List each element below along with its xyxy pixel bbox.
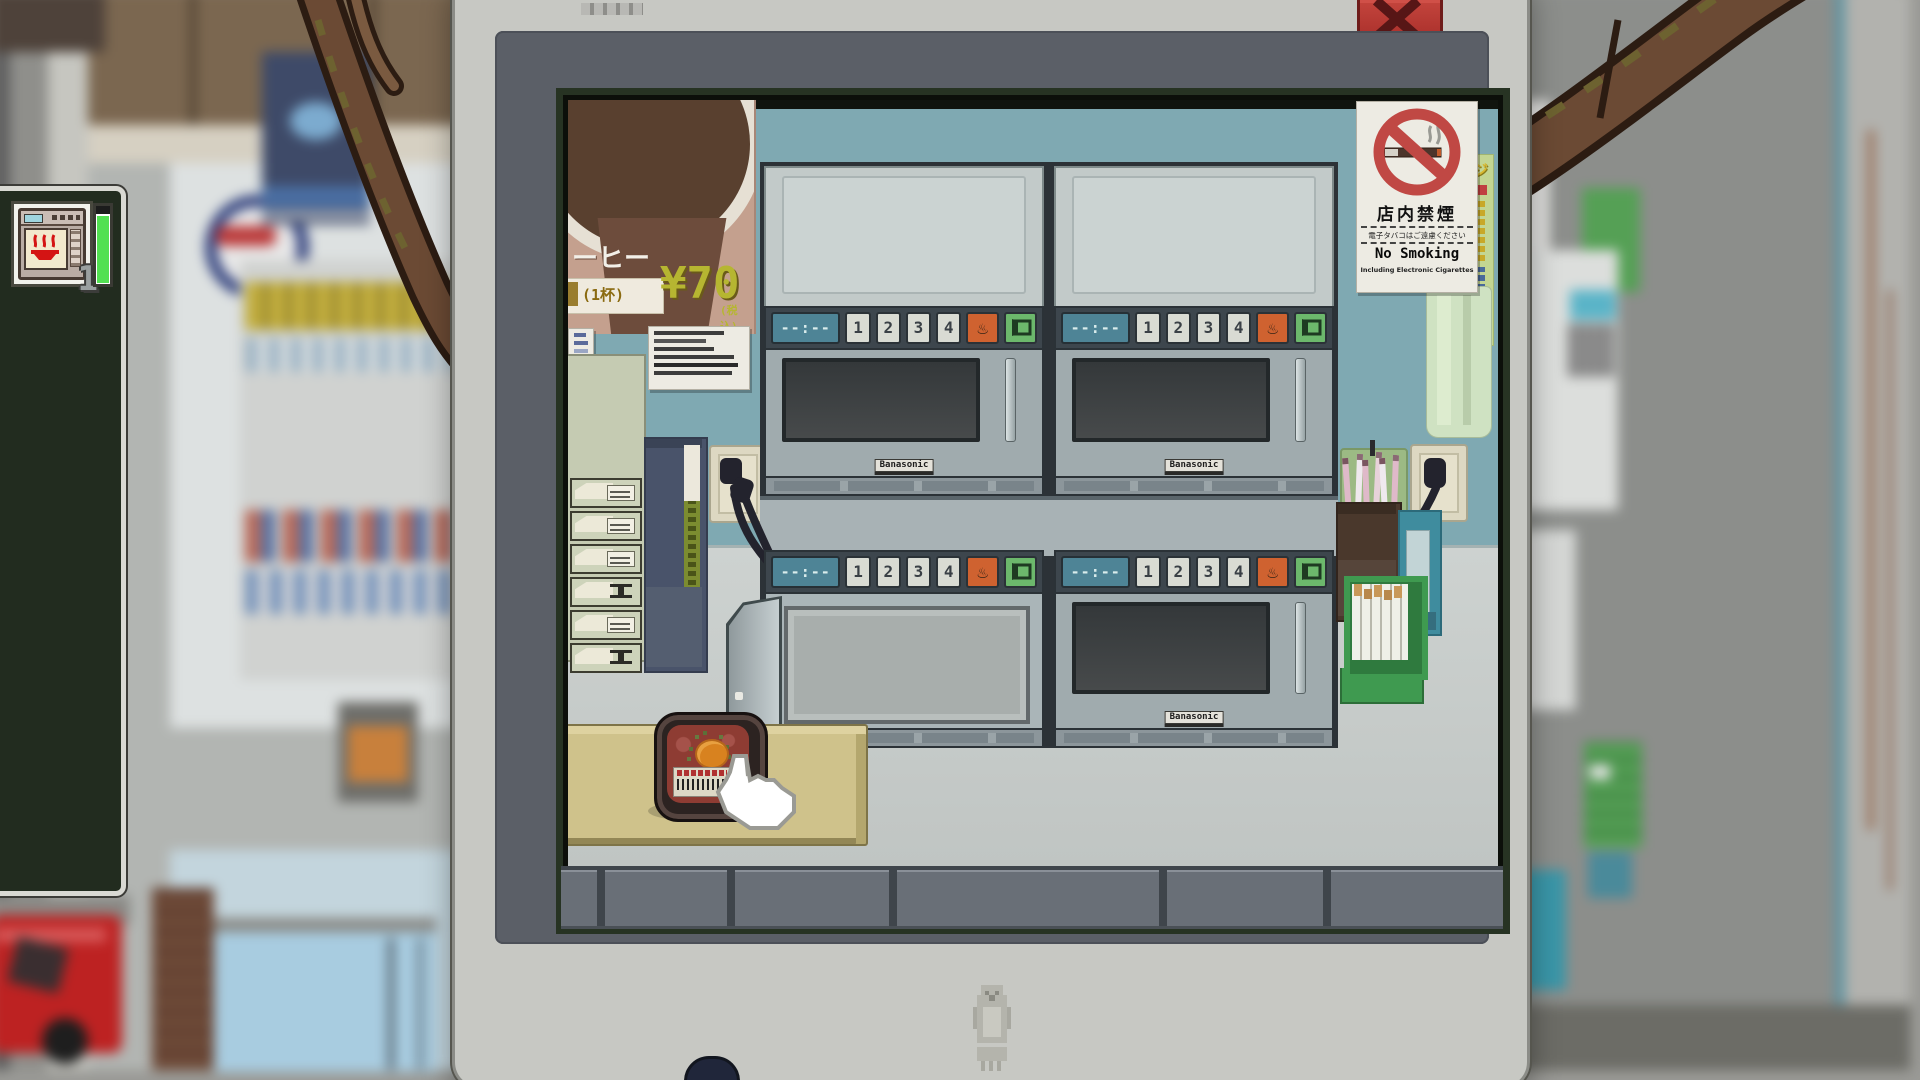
heat-button[interactable]: ♨: [1256, 312, 1289, 344]
timer-display: --:--: [771, 556, 840, 588]
heat-button[interactable]: ♨: [1256, 556, 1289, 588]
durability-bar: [93, 203, 113, 287]
microwave-top-right: --:-- 1 2 3 4 ♨ Banasonic: [1054, 166, 1334, 496]
microwave-door[interactable]: Banasonic: [1054, 350, 1334, 478]
door-open-button[interactable]: [1004, 312, 1037, 344]
door-window: [782, 358, 980, 442]
preset-button-1[interactable]: 1: [845, 312, 870, 344]
preset-button-2[interactable]: 2: [1166, 556, 1191, 588]
minigame-screen: ーヒー (1杯) ¥70 (税込): [563, 95, 1503, 927]
preset-button-3[interactable]: 3: [1196, 556, 1221, 588]
inventory-panel: 1: [0, 186, 126, 896]
plastic-bag: [1426, 286, 1492, 438]
microwave-bottom-right: --:-- 1 2 3 4 ♨ Banasonic: [1054, 550, 1334, 748]
preset-button-3[interactable]: 3: [906, 556, 931, 588]
microwave-control-panel: --:-- 1 2 3 4 ♨: [1054, 306, 1334, 350]
chopstick-box: [1344, 576, 1428, 680]
preset-button-4[interactable]: 4: [936, 556, 961, 588]
no-smoking-en-title: No Smoking: [1357, 246, 1477, 262]
door-open-button[interactable]: [1294, 556, 1327, 588]
microwave-icon: [18, 208, 86, 280]
preset-button-4[interactable]: 4: [1226, 556, 1251, 588]
heat-button[interactable]: ♨: [966, 556, 999, 588]
microwave-door[interactable]: Banasonic: [764, 350, 1044, 478]
microwave-slot-card[interactable]: 1: [11, 201, 93, 287]
preset-button-2[interactable]: 2: [876, 312, 901, 344]
preset-button-1[interactable]: 1: [845, 556, 870, 588]
door-handle: [1005, 358, 1016, 442]
timer-display: --:--: [771, 312, 840, 344]
door-handle: [1295, 358, 1306, 442]
screen-bezel: ーヒー (1杯) ¥70 (税込): [495, 31, 1489, 944]
microwave-bottom-left-open: --:-- 1 2 3 4 ♨: [764, 550, 1044, 748]
timer-display: --:--: [1061, 312, 1130, 344]
microwave-control-panel: --:-- 1 2 3 4 ♨: [764, 306, 1044, 350]
no-smoking-jp-note: 電子タバコはご遠慮ください: [1357, 230, 1477, 241]
preset-button-3[interactable]: 3: [906, 312, 931, 344]
no-smoking-sign: 店内禁煙 電子タバコはご遠慮ください No Smoking Including …: [1356, 101, 1478, 293]
game-screen: 1: [0, 0, 1920, 1080]
door-open-button[interactable]: [1294, 312, 1327, 344]
minigame-device: ーヒー (1杯) ¥70 (税込): [452, 0, 1530, 1080]
no-smoking-jp-title: 店内禁煙: [1357, 200, 1477, 225]
preset-button-3[interactable]: 3: [1196, 312, 1221, 344]
brand-label: Banasonic: [1165, 711, 1224, 724]
microwave-door[interactable]: Banasonic: [1054, 594, 1334, 730]
preset-button-1[interactable]: 1: [1135, 556, 1160, 588]
preset-button-4[interactable]: 4: [1226, 312, 1251, 344]
heat-button[interactable]: ♨: [966, 312, 999, 344]
brand-label: Banasonic: [1165, 459, 1224, 472]
microwave-top-left: --:-- 1 2 3 4 ♨ Banasonic: [764, 166, 1044, 496]
door-window: [1072, 358, 1270, 442]
microwave-control-panel: --:-- 1 2 3 4 ♨: [1054, 550, 1334, 594]
branch-right-icon: [1480, 0, 1920, 240]
door-open-button[interactable]: [1004, 556, 1037, 588]
microwave-open-cavity[interactable]: [764, 594, 1044, 730]
brand-label: Banasonic: [875, 459, 934, 472]
microwave-interior[interactable]: [784, 606, 1030, 724]
preset-button-2[interactable]: 2: [876, 556, 901, 588]
door-window: [1072, 602, 1270, 694]
preset-button-2[interactable]: 2: [1166, 312, 1191, 344]
timer-display: --:--: [1061, 556, 1130, 588]
penguin-logo-icon: [961, 983, 1023, 1071]
device-vent-icon: [581, 3, 643, 15]
no-smoking-en-note: Including Electronic Cigarettes: [1357, 266, 1477, 274]
hand-cursor-icon: [706, 752, 798, 836]
preset-button-4[interactable]: 4: [936, 312, 961, 344]
preset-button-1[interactable]: 1: [1135, 312, 1160, 344]
door-handle: [1295, 602, 1306, 694]
microwave-control-panel: --:-- 1 2 3 4 ♨: [764, 550, 1044, 594]
